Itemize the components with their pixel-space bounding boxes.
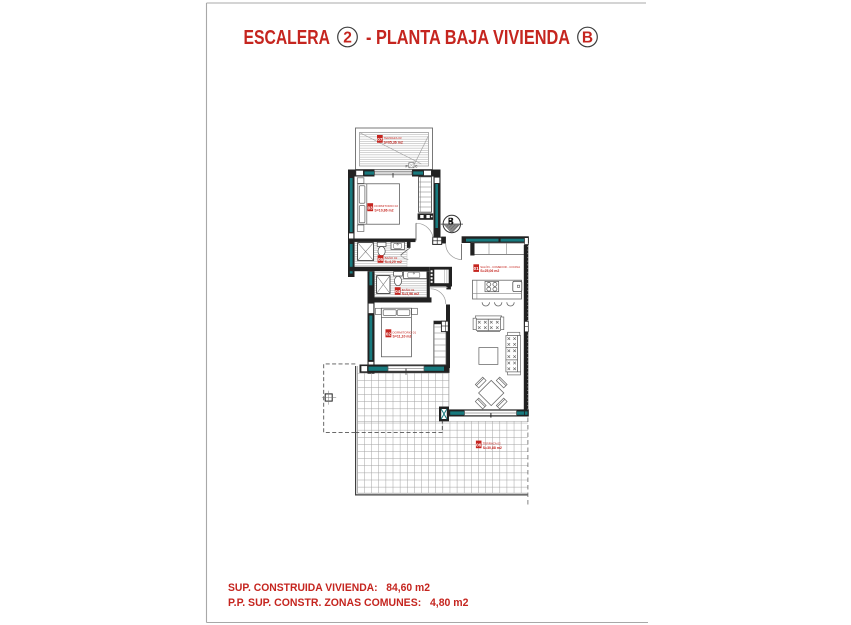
svg-text:S=4,20 m2: S=4,20 m2	[385, 260, 402, 264]
svg-text:S=10,86 m2: S=10,86 m2	[374, 209, 393, 213]
svg-text:07: 07	[377, 137, 383, 142]
svg-text:S=30,88 m2: S=30,88 m2	[483, 446, 502, 450]
svg-text:DORMITORIO 01: DORMITORIO 01	[393, 330, 417, 334]
svg-text:S=05,36 m2: S=05,36 m2	[384, 140, 403, 144]
svg-text:01: 01	[474, 266, 480, 271]
svg-text:ESCALERA: ESCALERA	[244, 27, 331, 49]
svg-text:B: B	[582, 30, 593, 47]
svg-text:06: 06	[476, 442, 482, 447]
svg-text:DORMITORIO 02: DORMITORIO 02	[374, 204, 398, 208]
svg-text:S=3,96 m2: S=3,96 m2	[402, 292, 419, 296]
svg-text:- PLANTA BAJA VIVIENDA: - PLANTA BAJA VIVIENDA	[366, 27, 570, 49]
svg-text:TERRAZA 02: TERRAZA 02	[483, 441, 501, 445]
svg-text:04: 04	[395, 289, 401, 294]
svg-text:02: 02	[386, 331, 392, 336]
svg-text:05: 05	[378, 257, 384, 262]
svg-text:S=11,10 m2: S=11,10 m2	[393, 335, 412, 339]
svg-text:03: 03	[368, 205, 374, 210]
svg-text:P.P. SUP. CONSTR. ZONAS COMUNE: P.P. SUP. CONSTR. ZONAS COMUNES: 4,80 m2	[228, 597, 469, 609]
svg-text:S=25,06 m2: S=25,06 m2	[480, 269, 499, 273]
svg-text:SUP. CONSTRUIDA VIVIENDA: 84: SUP. CONSTRUIDA VIVIENDA: 84,60 m2	[228, 582, 430, 594]
svg-text:2: 2	[343, 30, 352, 47]
